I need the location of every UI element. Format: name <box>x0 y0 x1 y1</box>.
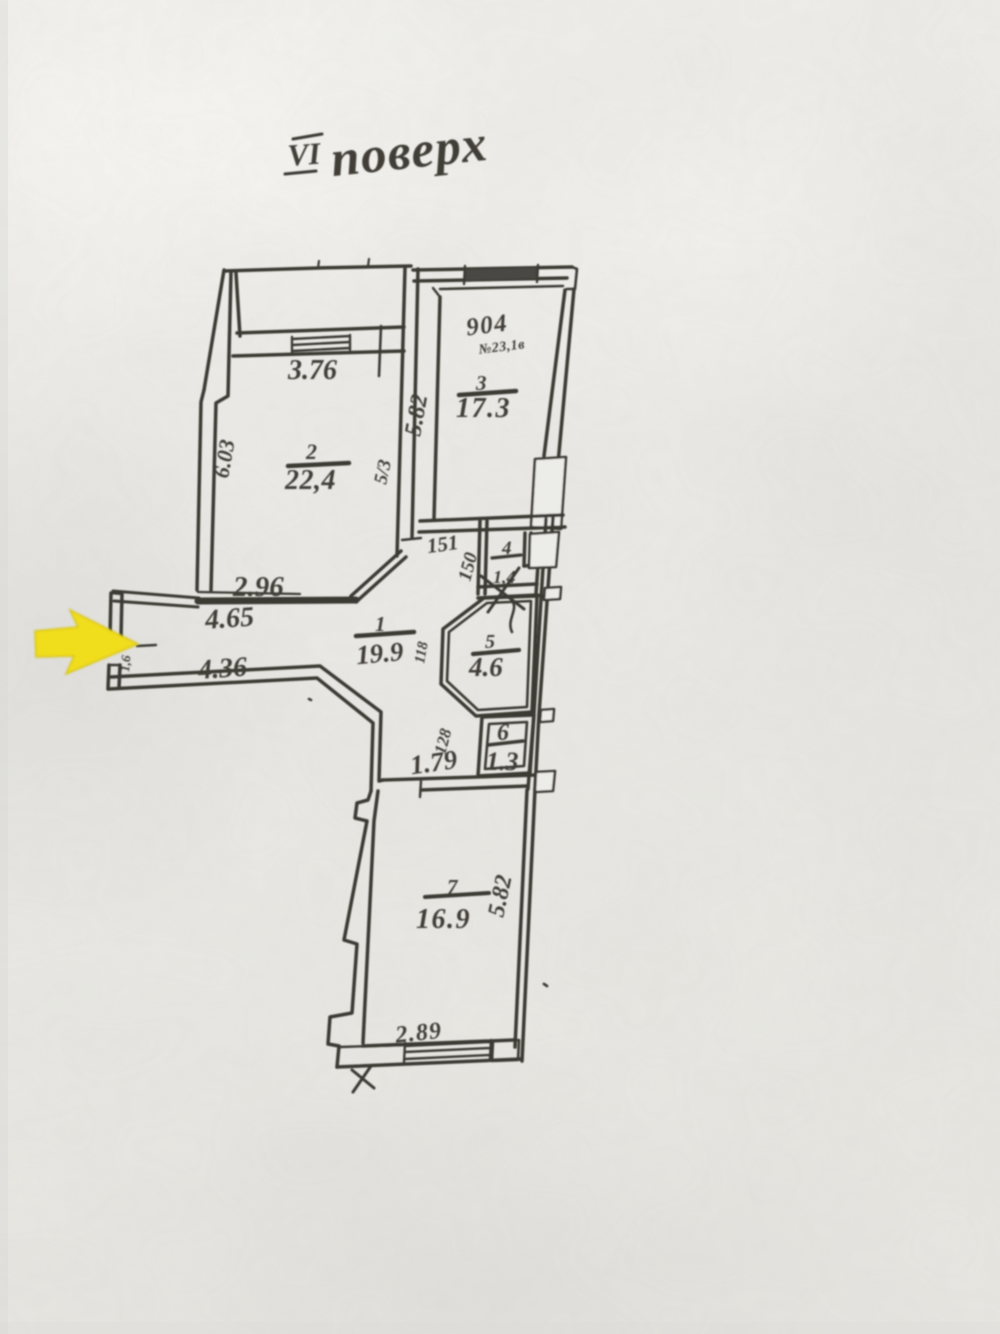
svg-text:5: 5 <box>485 631 495 653</box>
svg-text:2.96: 2.96 <box>232 571 284 603</box>
svg-text:2: 2 <box>305 439 317 464</box>
svg-text:1.3: 1.3 <box>486 747 519 776</box>
svg-text:2.89: 2.89 <box>393 1018 443 1049</box>
svg-text:VI: VI <box>286 136 322 173</box>
svg-text:17.3: 17.3 <box>456 393 511 424</box>
svg-text:4.6: 4.6 <box>468 652 503 682</box>
svg-text:1,6: 1,6 <box>117 654 133 672</box>
svg-text:4.65: 4.65 <box>203 602 255 636</box>
svg-text:16.9: 16.9 <box>416 904 471 935</box>
svg-text:19.9: 19.9 <box>355 636 405 670</box>
svg-text:22,4: 22,4 <box>284 465 336 496</box>
svg-text:904: 904 <box>465 310 510 342</box>
svg-text:151: 151 <box>425 530 460 558</box>
svg-text:4.36: 4.36 <box>196 652 248 686</box>
svg-text:3.76: 3.76 <box>287 355 337 386</box>
